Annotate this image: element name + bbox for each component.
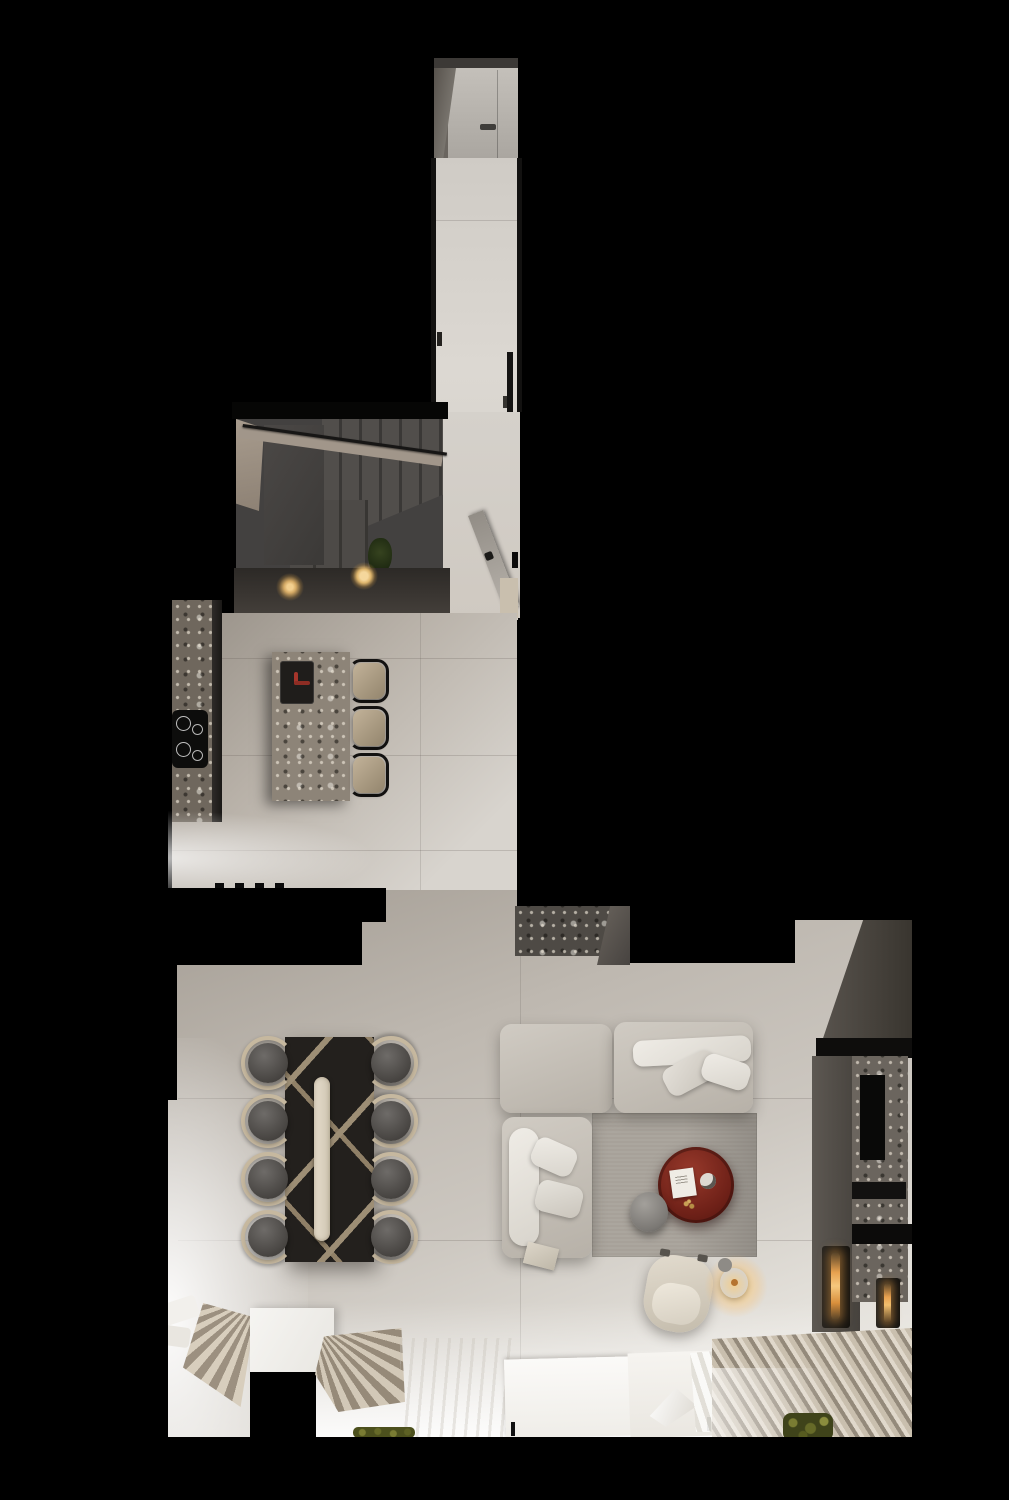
armchair-cushion xyxy=(649,1280,703,1328)
chair-seat xyxy=(371,1101,411,1141)
stone-console xyxy=(515,906,613,956)
cup xyxy=(700,1173,716,1189)
flame xyxy=(831,1252,840,1320)
door-handle-mark xyxy=(503,396,507,408)
chair-seat xyxy=(371,1217,411,1257)
dining-chair xyxy=(245,1156,291,1202)
armchair-foot xyxy=(697,1254,708,1263)
wall-opening xyxy=(250,1372,316,1438)
chair-seat xyxy=(248,1101,288,1141)
book xyxy=(669,1167,697,1198)
dining-chair xyxy=(368,1214,414,1260)
flame xyxy=(884,1283,891,1323)
door-threshold xyxy=(500,578,518,618)
fireplace-burner xyxy=(876,1278,900,1328)
floor-light-patch xyxy=(156,810,376,890)
lamp-cap xyxy=(718,1258,732,1272)
chair-seat xyxy=(248,1159,288,1199)
book-text-lines xyxy=(675,1174,688,1184)
sheer-curtain xyxy=(400,1338,512,1437)
door-seam xyxy=(497,70,498,162)
left-wall-mask xyxy=(0,0,168,1500)
dining-chair xyxy=(245,1214,291,1260)
stair-top-wall xyxy=(232,402,448,419)
tile-seam xyxy=(436,220,518,221)
media-shelf xyxy=(852,1224,912,1244)
candle-flame-dot xyxy=(731,1279,738,1286)
stool-seat xyxy=(353,757,385,793)
cooktop xyxy=(172,710,208,768)
dining-chair xyxy=(368,1156,414,1202)
chair-seat xyxy=(248,1217,288,1257)
bar-stool xyxy=(351,661,387,701)
tv-recess xyxy=(860,1075,885,1160)
red-faucet-arm xyxy=(294,681,310,685)
dining-chair xyxy=(368,1098,414,1144)
stool-seat xyxy=(353,710,385,746)
red-coffee-table xyxy=(658,1147,734,1223)
entry-door xyxy=(448,68,518,162)
corridor-wall-right xyxy=(517,158,522,412)
burner-ring xyxy=(192,750,203,761)
burner-ring xyxy=(192,724,203,735)
chair-seat xyxy=(371,1043,411,1083)
dining-chair xyxy=(245,1098,291,1144)
door-handle-icon xyxy=(480,124,496,130)
armchair-foot xyxy=(659,1248,670,1257)
dining-chair xyxy=(368,1040,414,1086)
chair-seat xyxy=(248,1043,288,1083)
tile-seam xyxy=(420,613,421,890)
door-jamb-dark xyxy=(507,352,513,412)
burner-ring xyxy=(176,716,191,731)
under-cabinet-light xyxy=(350,562,378,590)
right-wall-mask xyxy=(912,900,1009,1500)
dividing-wall-corner xyxy=(362,888,386,922)
door-frame-mark xyxy=(512,552,518,568)
entry-door-vignette xyxy=(434,58,518,162)
media-top-ledge xyxy=(816,1038,912,1058)
dining-chair xyxy=(245,1040,291,1086)
bar-stool xyxy=(351,755,387,795)
counter-side-face xyxy=(212,600,222,822)
window-sill-panel xyxy=(504,1356,632,1438)
door-handle-mark xyxy=(437,332,442,346)
candle-lamp xyxy=(720,1268,748,1298)
apartment-floorplan-render xyxy=(0,0,1009,1500)
kitchen-island xyxy=(272,652,350,801)
side-pouf xyxy=(630,1192,668,1232)
track-mark xyxy=(511,1422,515,1436)
chair-seat xyxy=(371,1159,411,1199)
stool-seat xyxy=(353,663,385,699)
table-runner xyxy=(314,1077,330,1241)
under-stair-counter xyxy=(234,568,450,617)
fireplace-burner xyxy=(822,1246,850,1328)
under-cabinet-light xyxy=(276,573,304,601)
burner-ring xyxy=(176,742,191,757)
sofa-module xyxy=(500,1024,612,1113)
bar-stool xyxy=(351,708,387,748)
dining-table xyxy=(285,1037,374,1262)
media-shelf xyxy=(852,1182,906,1199)
corridor-wall-left xyxy=(431,158,436,412)
gold-sprig xyxy=(682,1199,696,1211)
